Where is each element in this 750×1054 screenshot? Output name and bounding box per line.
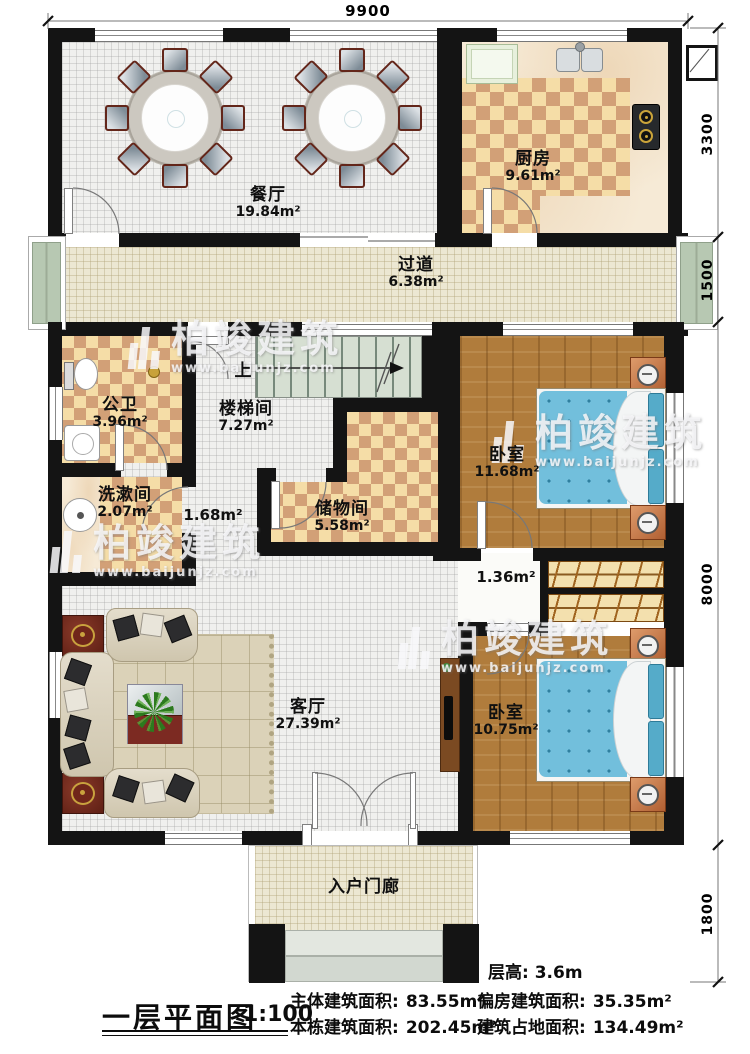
bedroom-hall-floor <box>458 553 540 622</box>
wall <box>438 336 460 548</box>
window <box>49 387 63 440</box>
chair-icon <box>398 105 422 131</box>
chair-icon <box>105 105 129 131</box>
wall <box>432 322 503 336</box>
wall <box>48 572 196 586</box>
wall <box>48 28 62 247</box>
room-label-washroom: 洗漱间2.07m² <box>97 486 152 521</box>
basin-icon <box>63 498 97 532</box>
chair-icon <box>162 48 188 72</box>
toilet-tank <box>64 362 74 390</box>
wall <box>167 463 196 477</box>
wall <box>326 468 347 482</box>
wall <box>242 831 302 845</box>
wall <box>630 831 684 845</box>
nightstand-icon <box>630 777 666 812</box>
toilet-icon <box>74 358 98 390</box>
chair-icon <box>339 164 365 188</box>
sofa-icon <box>104 768 200 818</box>
wall <box>533 548 664 561</box>
wall <box>537 233 688 247</box>
fridge-top <box>471 49 513 79</box>
window <box>302 324 432 336</box>
wall <box>437 42 462 233</box>
chair-icon <box>339 48 365 72</box>
window <box>666 667 684 777</box>
stairs-up-label: 上 <box>235 356 252 381</box>
wall <box>119 233 300 247</box>
room-label-living: 客厅27.39m² <box>275 698 340 733</box>
stat-building-area: 本栋建筑面积:202.45m² <box>290 1013 497 1038</box>
window <box>165 833 242 845</box>
wall <box>458 622 473 845</box>
dimension-side-main: 8000 <box>700 562 716 606</box>
burner-icon <box>639 110 653 124</box>
flue <box>686 45 718 81</box>
door-leaf <box>190 336 229 345</box>
floor-drain-icon <box>148 366 160 378</box>
door-leaf <box>410 772 416 829</box>
nightstand-icon <box>630 357 666 392</box>
door-leaf <box>64 188 73 234</box>
plant-icon <box>442 663 451 672</box>
wall <box>548 588 664 594</box>
kitchen-tile <box>462 196 540 233</box>
side-table-icon <box>62 773 104 814</box>
wall <box>435 233 492 247</box>
porch-step <box>285 956 443 982</box>
wall <box>228 322 302 336</box>
window <box>497 30 627 42</box>
title-rule <box>102 1035 288 1036</box>
door-leaf <box>115 424 124 471</box>
nightstand-icon <box>630 505 666 540</box>
area-label-hall: 1.68m² <box>183 506 242 524</box>
dimension-side-porch: 1800 <box>700 892 716 936</box>
burner-icon <box>639 129 653 143</box>
door-leaf <box>271 481 280 529</box>
wall <box>668 28 682 233</box>
chair-icon <box>221 105 245 131</box>
room-label-porch: 入户门廊 <box>328 878 400 897</box>
floor-plan: 柏竣建筑 www.baijunjz.com 柏竣建筑 www.baijunjz.… <box>0 0 750 1054</box>
door-leaf <box>487 623 529 632</box>
dimension-top: 9900 <box>338 2 398 20</box>
door-leaf <box>312 772 318 829</box>
window <box>290 30 437 42</box>
basin-drain <box>77 512 84 519</box>
wall <box>422 336 438 400</box>
wall <box>437 28 497 42</box>
wall <box>48 831 165 845</box>
wall <box>528 622 548 636</box>
room-label-bedroom1: 卧室11.68m² <box>474 446 539 481</box>
stat-footprint-area: 建筑占地面积:134.49m² <box>477 1013 684 1038</box>
stove-icon <box>632 104 660 150</box>
room-label-bedroom2: 卧室10.75m² <box>473 704 538 739</box>
wall <box>333 398 460 412</box>
fridge-icon <box>466 44 518 84</box>
porch-column <box>443 924 479 983</box>
room-label-storage: 储物间5.58m² <box>314 500 369 535</box>
plant-icon <box>134 692 174 732</box>
stat-annex-area: 偏房建筑面积:35.35m² <box>477 987 672 1012</box>
corridor-end-step <box>32 242 61 324</box>
wall <box>48 322 188 336</box>
title-rule <box>102 1030 288 1032</box>
room-label-bathroom: 公卫3.96m² <box>92 396 147 431</box>
sink-icon <box>581 48 603 72</box>
dimension-side-corridor: 1500 <box>700 258 716 302</box>
dimension-side-top: 3300 <box>700 112 716 156</box>
area-label-bedroom-hall: 1.36m² <box>476 568 535 586</box>
stat-main-area: 主体建筑面积:83.55m² <box>290 987 485 1012</box>
sink-icon <box>556 48 580 72</box>
bed-icon <box>536 658 666 782</box>
bed-icon <box>536 388 666 509</box>
room-label-corridor: 过道6.38m² <box>388 256 443 291</box>
washer-drum <box>72 433 94 455</box>
side-table-icon <box>62 615 104 656</box>
chair-icon <box>162 164 188 188</box>
chair-icon <box>282 105 306 131</box>
wardrobe-icon <box>548 561 664 588</box>
wall <box>223 28 290 42</box>
corridor-floor <box>62 247 678 322</box>
porch-column <box>249 924 285 983</box>
sofa-icon <box>106 608 198 662</box>
porch-step <box>285 930 443 956</box>
tv-icon <box>444 696 453 740</box>
wall <box>257 542 460 556</box>
room-label-dining: 餐厅19.84m² <box>235 186 300 221</box>
window <box>95 30 223 42</box>
wardrobe-icon <box>548 594 664 622</box>
wall <box>62 463 121 477</box>
door-leaf <box>483 188 492 234</box>
wall <box>433 548 481 561</box>
faucet-icon <box>575 42 585 52</box>
stairs <box>255 336 422 398</box>
door-leaf <box>477 501 486 549</box>
floor-height-label: 层高: 3.6m <box>488 958 583 983</box>
window <box>510 833 630 845</box>
room-label-stairwell: 楼梯间7.27m² <box>218 400 273 435</box>
sofa-icon <box>60 652 114 777</box>
porch: 入户门廊 <box>248 845 478 982</box>
window <box>503 324 633 336</box>
window <box>666 393 684 503</box>
room-label-kitchen: 厨房9.61m² <box>505 150 560 185</box>
